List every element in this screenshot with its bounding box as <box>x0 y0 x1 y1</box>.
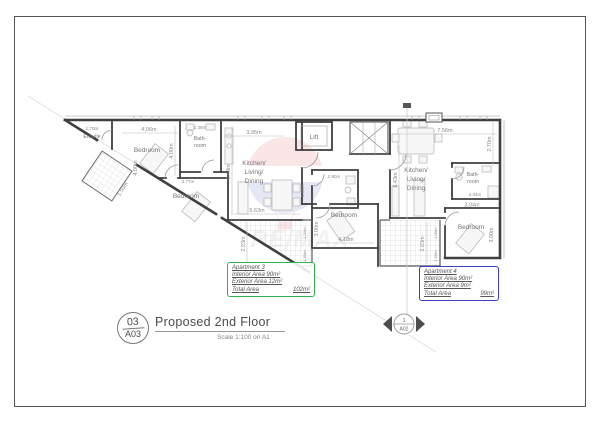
dim-kitchen4-top: 7.56m <box>437 128 453 134</box>
table-apt3 <box>272 180 292 210</box>
dim-bath-mid-w: 2.80m <box>328 174 341 179</box>
room-ensuite: Ensuite <box>83 134 100 140</box>
dim-bedroom-mid-w: 4.18m <box>338 237 354 243</box>
room-kitchen3-2: Living/ <box>245 169 264 176</box>
drawing-title: Proposed 2nd Floor <box>155 315 285 329</box>
room-lift: Lift <box>310 134 319 141</box>
apartment3-interior-area: Interior Area 90m² <box>232 272 310 279</box>
apartment4-name: Apartment 4 <box>424 269 494 276</box>
shaft <box>82 151 132 201</box>
dim-bedroom-se-h: 3.00m <box>489 227 495 243</box>
room-bath-nw-1: Bath- <box>194 136 207 142</box>
sheet-code: A03 <box>125 329 141 340</box>
dim-bedroom-nw-w: 4.06m <box>141 127 157 133</box>
room-bedroom-se: Bedroom <box>458 224 484 231</box>
dim-bedroom-nw-h2: 4.00m <box>133 160 139 176</box>
dim-kitchen3-bottom: 5.63m <box>249 208 265 214</box>
room-kitchen4-2: Living/ <box>407 176 426 183</box>
room-bath-se-1: Bath- <box>467 172 480 178</box>
dim-bedroom-w-w: 3.77m <box>182 179 195 184</box>
scale-note: Scale 1:100 on A1 <box>217 334 285 341</box>
apartment3-total-value: 102m² <box>293 287 310 294</box>
section-tick-top <box>403 103 411 108</box>
dim-ensuite: 1.70m <box>86 126 99 131</box>
section-marker: 1 A02 <box>383 314 425 334</box>
dim-kitchen3-top: 3.95m <box>246 130 262 136</box>
dim-terrace4-s2: 1.50m <box>433 250 438 262</box>
dim-terrace4-s1: 1.30m <box>433 227 438 239</box>
dim-terrace3-h: 2.93m <box>241 236 247 252</box>
dim-kitchen4-right: 2.70m <box>487 136 493 152</box>
title-block: 03 A03 Proposed 2nd Floor Scale 1:100 on… <box>117 312 285 344</box>
dim-bath-se-w: 3.04m <box>469 192 482 197</box>
apartment4-exterior-area: Exterior Area 9m² <box>424 283 494 290</box>
dim-terrace3-s2: 1.50m <box>302 250 307 262</box>
apartment3-name: Apartment 3 <box>232 265 310 272</box>
terrace-apt3 <box>226 220 312 266</box>
room-bath-se-2: room <box>467 179 479 185</box>
sofa-apt3 <box>238 182 248 214</box>
apartment4-annotation: Apartment 4 Interior Area 90m² Exterior … <box>419 266 499 301</box>
dim-kitchen4-h: 6.43m <box>393 172 399 188</box>
vent-box <box>426 113 442 122</box>
drawing-number-bubble: 03 A03 <box>117 312 149 344</box>
dim-bedroom-se-w: 3.04m <box>464 203 480 209</box>
title-underline <box>155 331 285 332</box>
room-kitchen3-3: Dining <box>245 178 264 185</box>
drawing-number: 03 <box>122 315 145 329</box>
section-marker-number: 1 <box>402 318 405 324</box>
terrace-apt4 <box>380 220 440 266</box>
dim-terrace3-s1: 1.30m <box>302 227 307 239</box>
apartment3-exterior-area: Exterior Area 12m² <box>232 279 310 286</box>
dim-terrace4-h: 2.03m <box>420 236 426 252</box>
floor-plan-canvas: RE/MAX <box>0 0 600 423</box>
room-bath-nw-2: room <box>194 143 206 149</box>
dim-bedroom-nw-h: 4.00m <box>169 143 175 159</box>
room-bedroom-w: Bedroom <box>173 193 199 200</box>
table-apt4 <box>398 128 434 154</box>
apartment4-interior-area: Interior Area 90m² <box>424 276 494 283</box>
stairs <box>350 122 388 154</box>
dim-bedroom-mid-h: 3.00m <box>314 221 320 237</box>
room-kitchen3-1: Kitchen/ <box>242 160 266 167</box>
room-kitchen4-1: Kitchen/ <box>404 167 428 174</box>
room-bedroom-nw: Bedroom <box>134 147 160 154</box>
apartment3-annotation: Apartment 3 Interior Area 90m² Exterior … <box>227 262 315 297</box>
room-bedroom-mid: Bedroom <box>331 212 357 219</box>
drawing-sheet: RE/MAX <box>0 0 600 423</box>
section-marker-code: A02 <box>400 327 409 333</box>
dim-kitchen3-h: 6.43m <box>226 164 232 180</box>
dim-hall-h: 4.68m <box>300 184 305 197</box>
room-kitchen4-3: Dining <box>407 185 426 192</box>
apartment4-total-label: Total Area <box>424 291 451 298</box>
dim-bath-nw-w: 2.36m <box>194 125 207 130</box>
apartment4-total-value: 99m² <box>480 291 494 298</box>
apartment3-total-label: Total Area <box>232 287 259 294</box>
